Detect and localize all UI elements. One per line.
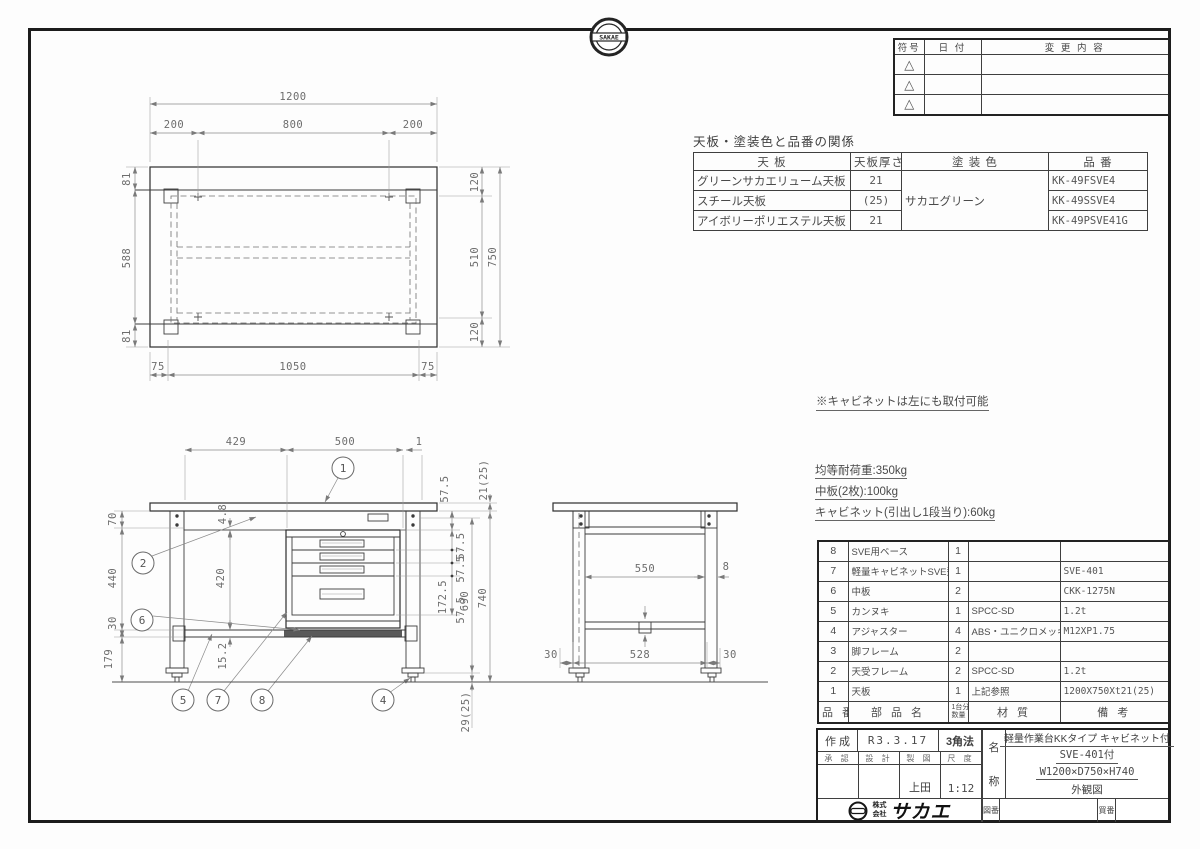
part-remarks: [1060, 641, 1169, 661]
dim-front-70: 70: [107, 512, 119, 526]
dim-front-690: 690: [459, 591, 471, 611]
part-material: SPCC-SD: [968, 601, 1060, 621]
finish-plate-name: スチール天板: [694, 191, 851, 211]
part-no: 3: [818, 641, 848, 661]
part-no: 6: [818, 581, 848, 601]
parts-row: 2 天受フレーム 2 SPCC-SD 1.2t: [818, 661, 1169, 681]
parts-row: 6 中板 2 CKK-1275N: [818, 581, 1169, 601]
part-qty: 1: [948, 561, 968, 581]
dim-front-57-5c: 57.5: [455, 555, 467, 582]
note-load-cabinet: キャビネット(引出し1段当り):60kg: [815, 507, 995, 521]
finish-header-color: 塗 装 色: [902, 153, 1049, 171]
part-qty: 1: [948, 681, 968, 701]
dim-front-57-5a: 57.5: [439, 475, 451, 502]
finish-thickness: (25): [851, 191, 902, 211]
dim-front-740: 740: [477, 588, 489, 608]
revision-table: 符号 日 付 変 更 内 容 △ △ △: [893, 38, 1170, 116]
approve-signature: [818, 765, 859, 799]
name-label-bottom: 称: [989, 773, 1000, 789]
company-prefix-top: 株式: [872, 802, 886, 810]
dim-side-550: 550: [635, 563, 655, 575]
parts-row: 1 天板 1 上記参照 1200X750Xt21(25): [818, 681, 1169, 701]
company-logo-row: 株式 会社 サカエ: [818, 799, 982, 822]
dim-plan-75l: 75: [151, 361, 165, 373]
finish-header-partno: 品 番: [1049, 153, 1148, 171]
parts-table: 8 SVE用ベース 1 7 軽量キャビネットSVE型 1 SVE-401 6 中…: [817, 540, 1170, 724]
part-qty: 4: [948, 621, 968, 641]
finish-partno: KK-49SSVE4: [1049, 191, 1148, 211]
scale-value: 1:12: [941, 765, 982, 799]
part-name: アジャスター: [848, 621, 948, 641]
finish-table: 天 板 天板厚さ 塗 装 色 品 番 グリーンサカエリューム天板 21 サカエグ…: [693, 152, 1148, 231]
parts-header-qty-bottom: 数量: [952, 712, 965, 720]
revision-triangle-icon: △: [904, 77, 914, 92]
dim-front-172-5: 172.5: [437, 580, 449, 614]
dim-front-420: 420: [215, 568, 227, 588]
dim-plan-81t: 81: [121, 172, 133, 186]
parts-row: 4 アジャスター 4 ABS・ユニクロメッキ M12XP1.75: [818, 621, 1169, 641]
dim-front-15-2: 15.2: [217, 642, 229, 669]
dim-plan-75r: 75: [421, 361, 435, 373]
finish-table-title: 天板・塗装色と品番の関係: [693, 131, 855, 153]
parts-row: 8 SVE用ベース 1: [818, 541, 1169, 561]
load-notes: 均等耐荷重:350kg 中板(2枚):100kg キャビネット(引出し1段当り)…: [815, 462, 995, 525]
part-remarks: 1.2t: [1060, 601, 1169, 621]
part-remarks: SVE-401: [1060, 561, 1169, 581]
balloon-1: 1: [340, 462, 347, 475]
created-label: 作 成: [818, 730, 858, 752]
part-name: 天板: [848, 681, 948, 701]
part-material: 上記参照: [968, 681, 1060, 701]
dim-plan-200r: 200: [403, 119, 423, 131]
part-material: [968, 561, 1060, 581]
company-prefix-bottom: 会社: [872, 811, 886, 819]
sakae-badge: SAKAE: [588, 16, 630, 58]
dim-plan-200l: 200: [164, 119, 184, 131]
part-remarks: 1.2t: [1060, 661, 1169, 681]
dim-front-429: 429: [226, 436, 246, 448]
part-material: SPCC-SD: [968, 661, 1060, 681]
dim-plan-800: 800: [283, 119, 303, 131]
badge-text: SAKAE: [599, 34, 619, 42]
part-no: 1: [818, 681, 848, 701]
drawing-no-value: [1000, 799, 1098, 822]
revision-row: △: [894, 55, 1169, 75]
dim-plan-510: 510: [469, 247, 481, 267]
projection-method: 3角法: [939, 730, 982, 752]
design-signature: [859, 765, 900, 799]
part-no: 5: [818, 601, 848, 621]
draft-label: 製 図: [900, 752, 941, 765]
parts-header-name: 部 品 名: [848, 701, 948, 723]
dim-side-30r: 30: [723, 649, 737, 661]
dim-front-1: 1: [416, 436, 423, 448]
part-name: 軽量キャビネットSVE型: [848, 561, 948, 581]
scale-label: 尺 度: [941, 752, 982, 765]
note-load-shelf: 中板(2枚):100kg: [815, 486, 898, 500]
revision-triangle-icon: △: [904, 96, 914, 111]
company-name: サカエ: [890, 797, 950, 824]
finish-row: グリーンサカエリューム天板 21 サカエグリーン KK-49FSVE4: [694, 171, 1148, 191]
parts-header-qty-top: 1台分: [952, 704, 965, 712]
revision-header-symbol: 符号: [894, 39, 924, 55]
dim-plan-588: 588: [121, 248, 133, 268]
part-name: 中板: [848, 581, 948, 601]
drawing-no-label: 図番: [983, 806, 999, 816]
company-prefix: 株式 会社: [872, 802, 886, 818]
company-logo-icon: [848, 801, 868, 821]
drawing-type: 外観図: [1071, 782, 1103, 797]
title-block: 作 成 R3.3.17 3角法 承 認 設 計 製 図 尺 度 上田 1:12 …: [816, 728, 1170, 822]
design-label: 設 計: [859, 752, 900, 765]
side-view: 550 8 30 528 30: [544, 503, 737, 682]
drafter-signature: 上田: [900, 765, 941, 799]
finish-thickness: 21: [851, 171, 902, 191]
part-material: [968, 541, 1060, 561]
parts-row: 7 軽量キャビネットSVE型 1 SVE-401: [818, 561, 1169, 581]
dim-plan-750: 750: [487, 247, 499, 267]
part-material: [968, 581, 1060, 601]
model-number: SVE-401付: [1056, 747, 1119, 764]
finish-partno: KK-49FSVE4: [1049, 171, 1148, 191]
dim-front-29-25: 29(25): [460, 692, 472, 733]
plan-view: 1200 200 800 200 81 588 81 120 51: [121, 91, 510, 381]
finish-paint-color: サカエグリーン: [902, 171, 1049, 231]
note-cabinet-mount: ※キャビネットは左にも取付可能: [816, 393, 989, 411]
part-name: 脚フレーム: [848, 641, 948, 661]
balloon-4: 4: [380, 694, 387, 707]
revision-row: △: [894, 75, 1169, 95]
parts-row: 3 脚フレーム 2: [818, 641, 1169, 661]
part-name: カンヌキ: [848, 601, 948, 621]
dim-side-30l: 30: [544, 649, 558, 661]
dim-front-4-8: 4.8: [217, 504, 229, 524]
buy-no-label: 買番: [1099, 806, 1115, 816]
dim-front-179: 179: [103, 649, 115, 669]
finish-header-plate: 天 板: [694, 153, 851, 171]
part-remarks: CKK-1275N: [1060, 581, 1169, 601]
part-remarks: [1060, 541, 1169, 561]
part-name: SVE用ベース: [848, 541, 948, 561]
parts-header-remarks: 備 考: [1060, 701, 1169, 723]
parts-row: 5 カンヌキ 1 SPCC-SD 1.2t: [818, 601, 1169, 621]
finish-plate-name: グリーンサカエリューム天板: [694, 171, 851, 191]
balloon-8: 8: [259, 694, 266, 707]
front-view: 429 500 1 70 440 30 179 4.8 420 15.2: [103, 436, 497, 732]
part-qty: 2: [948, 641, 968, 661]
parts-header-qty: 1台分 数量: [948, 701, 968, 723]
product-name: 軽量作業台KKタイプ キャビネット付: [1000, 730, 1174, 747]
dimensions-text: W1200×D750×H740: [1036, 766, 1139, 780]
finish-partno: KK-49PSVE41G: [1049, 211, 1148, 231]
dim-plan-81b: 81: [121, 329, 133, 343]
part-qty: 1: [948, 541, 968, 561]
name-label-top: 名: [989, 739, 1000, 755]
revision-triangle-icon: △: [904, 57, 914, 72]
balloon-7: 7: [215, 694, 222, 707]
revision-row: △: [894, 95, 1169, 115]
note-load-uniform: 均等耐荷重:350kg: [815, 465, 907, 479]
balloon-5: 5: [180, 694, 187, 707]
dim-plan-width: 1200: [279, 91, 306, 103]
part-material: ABS・ユニクロメッキ: [968, 621, 1060, 641]
part-no: 7: [818, 561, 848, 581]
revision-header-date: 日 付: [924, 39, 981, 55]
part-name: 天受フレーム: [848, 661, 948, 681]
parts-header-no: 品 番: [818, 701, 848, 723]
part-qty: 2: [948, 661, 968, 681]
created-date: R3.3.17: [858, 730, 939, 752]
balloon-2: 2: [140, 557, 147, 570]
dim-plan-120b: 120: [469, 322, 481, 342]
dim-plan-1050: 1050: [279, 361, 306, 373]
part-no: 4: [818, 621, 848, 641]
finish-thickness: 21: [851, 211, 902, 231]
parts-header-material: 材 質: [968, 701, 1060, 723]
finish-header-thickness: 天板厚さ: [851, 153, 902, 171]
approve-label: 承 認: [818, 752, 859, 765]
part-remarks: M12XP1.75: [1060, 621, 1169, 641]
finish-plate-name: アイボリーポリエステル天板: [694, 211, 851, 231]
part-no: 2: [818, 661, 848, 681]
part-qty: 2: [948, 581, 968, 601]
dim-side-528: 528: [630, 649, 650, 661]
dim-front-440: 440: [107, 568, 119, 588]
part-no: 8: [818, 541, 848, 561]
dim-side-8: 8: [723, 561, 730, 573]
dim-front-500: 500: [335, 436, 355, 448]
drawing-sheet: 1200 200 800 200 81 588 81 120 51: [0, 0, 1200, 849]
balloon-6: 6: [139, 614, 146, 627]
part-remarks: 1200X750Xt21(25): [1060, 681, 1169, 701]
buy-no-value: [1116, 799, 1172, 822]
dim-plan-120t: 120: [469, 172, 481, 192]
dim-front-21-25: 21(25): [478, 460, 490, 501]
part-qty: 1: [948, 601, 968, 621]
dim-front-30: 30: [107, 616, 119, 630]
revision-header-change: 変 更 内 容: [981, 39, 1169, 55]
part-material: [968, 641, 1060, 661]
